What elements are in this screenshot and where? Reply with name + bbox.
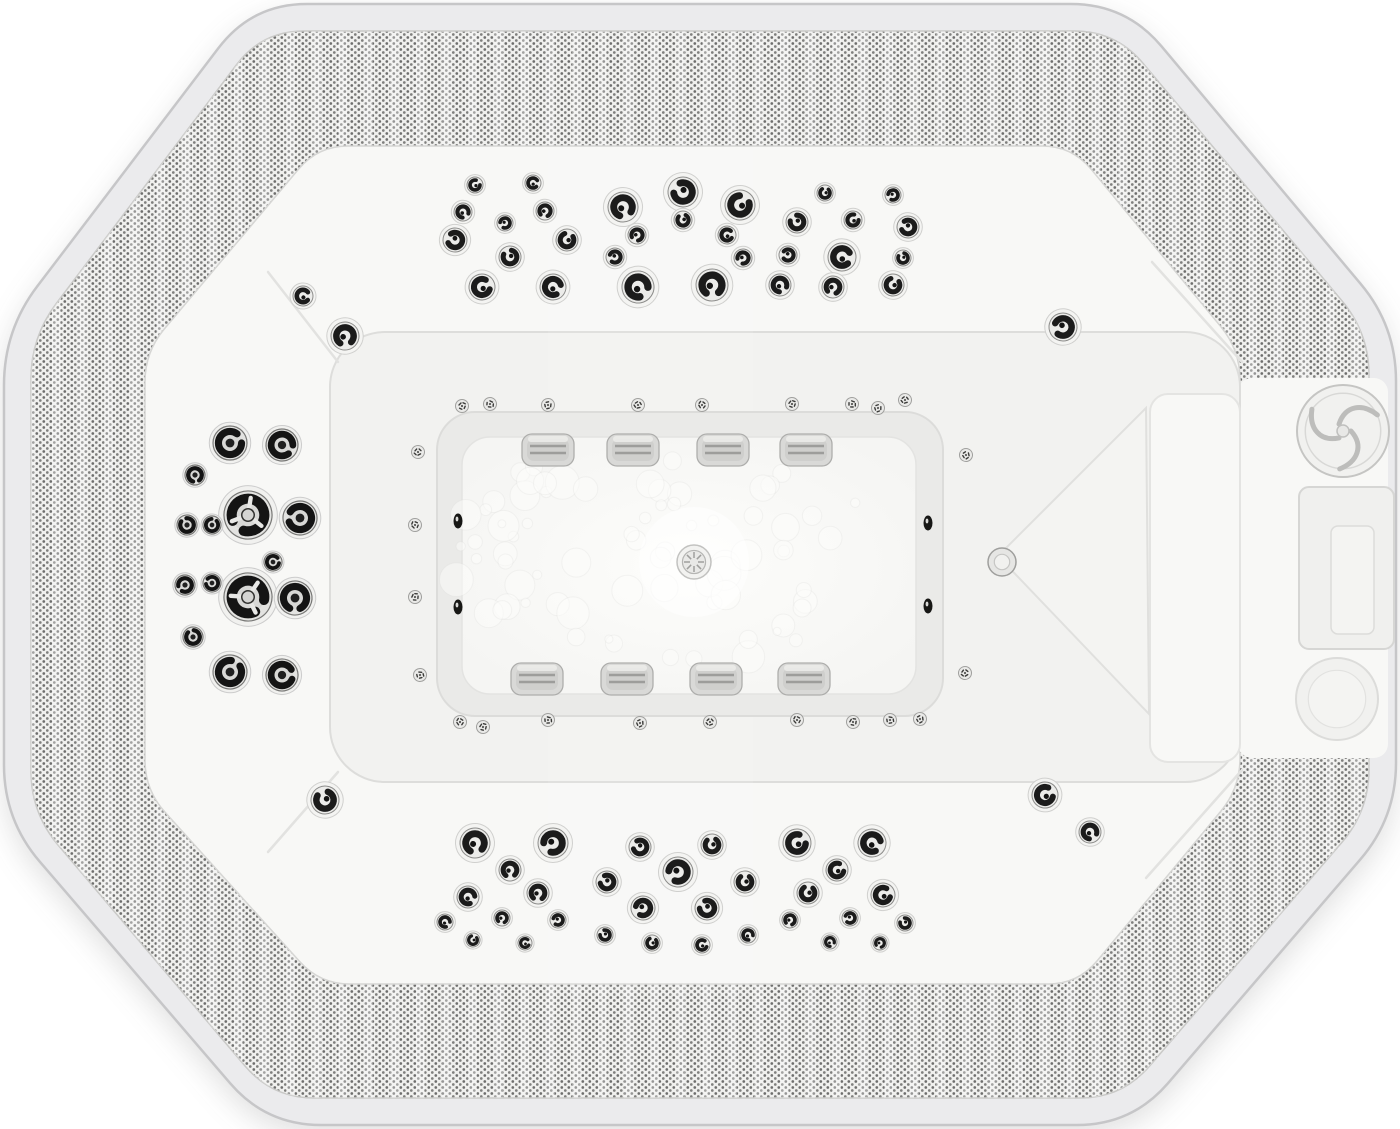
water-bubble [851, 498, 860, 507]
water-bubble [636, 470, 664, 498]
water-bubble [557, 597, 589, 629]
pillow-vent-block [778, 663, 830, 695]
suction-opening [454, 514, 463, 529]
pillow-vent-block [780, 434, 832, 466]
pillow-vent-block [522, 434, 574, 466]
air-injector-button [456, 400, 469, 413]
water-bubble [789, 634, 802, 647]
suction-fitting [924, 599, 933, 614]
water-bubble [639, 512, 651, 524]
vent-inset [606, 668, 648, 690]
hot-tub-photo [0, 0, 1400, 1129]
massage-jet [841, 208, 865, 232]
suction-fitting [454, 600, 463, 615]
water-bubble [796, 583, 811, 598]
air-injector-button [785, 397, 799, 411]
water-bubble [667, 497, 680, 510]
water-bubble [605, 635, 613, 643]
pillow-vent-block [511, 663, 563, 695]
water-bubble [533, 570, 542, 579]
suction-highlight [926, 602, 929, 607]
water-bubble [750, 475, 776, 501]
vent-inset [695, 668, 737, 690]
vent-sheen [786, 436, 826, 442]
control-recess-inner [1331, 526, 1374, 634]
vent-sheen [528, 436, 568, 442]
suction-opening [924, 516, 933, 531]
lounge-seat-pan [1150, 394, 1240, 762]
vent-sheen [784, 665, 824, 671]
water-bubble [456, 542, 465, 551]
suction-highlight [456, 517, 459, 522]
water-bubble [744, 507, 763, 526]
massage-jet [533, 823, 573, 863]
water-bubble [498, 520, 506, 528]
water-bubble [773, 627, 781, 635]
pillow-vent-block [601, 663, 653, 695]
water-bubble [440, 563, 474, 597]
suction-fitting [454, 514, 463, 529]
knob-face [994, 554, 1009, 569]
vent-sheen [607, 665, 647, 671]
water-bubble [656, 500, 667, 511]
suction-opening [454, 600, 463, 615]
water-bubble [739, 630, 757, 648]
water-bubble [471, 554, 481, 564]
jet-center [226, 439, 235, 448]
drain-cap [677, 545, 711, 579]
suction-highlight [456, 603, 459, 608]
water-bubble [521, 598, 530, 607]
water-bubble [624, 526, 639, 541]
pillow-vent-block [697, 434, 749, 466]
pillow-vent-block [607, 434, 659, 466]
suction-highlight [926, 519, 929, 524]
vent-inset [516, 668, 558, 690]
suction-fitting [924, 516, 933, 531]
water-bubble [793, 599, 811, 617]
massage-jet [821, 933, 840, 952]
water-bubble [662, 649, 678, 665]
water-bubble [573, 477, 597, 501]
speaker-hub [1337, 425, 1349, 437]
water-bubble [774, 540, 794, 560]
massage-jet [465, 175, 486, 196]
vent-sheen [613, 436, 653, 442]
air-injector-button [408, 518, 421, 531]
water-bubble [498, 554, 513, 569]
speaker-dial [1297, 385, 1389, 477]
vent-sheen [696, 665, 736, 671]
vent-inset [783, 668, 825, 690]
vent-inset [785, 439, 827, 461]
button-center [461, 405, 463, 407]
chrome-ring-jet [209, 422, 250, 463]
water-bubble [493, 601, 512, 620]
vent-sheen [703, 436, 743, 442]
water-bubble [468, 535, 483, 550]
vent-inset [702, 439, 744, 461]
water-bubble [663, 452, 681, 470]
water-bubble [562, 548, 591, 577]
vent-sheen [517, 665, 557, 671]
water-bubble [802, 506, 821, 525]
suction-opening [924, 599, 933, 614]
pillow-vent-block [690, 663, 742, 695]
water-bubble [818, 526, 842, 550]
water-bubble [772, 513, 800, 541]
cup-holder-bottom [1308, 670, 1365, 727]
water-bubble [522, 518, 532, 528]
hot-tub-top-view [0, 0, 1400, 1129]
water-bubble [612, 575, 643, 606]
headrest-knob [988, 548, 1016, 576]
jet-eyeball [474, 184, 477, 187]
water-bubble [534, 472, 557, 495]
water-bubble [567, 628, 585, 646]
vent-inset [612, 439, 654, 461]
air-injector-button [790, 713, 804, 727]
vent-inset [527, 439, 569, 461]
